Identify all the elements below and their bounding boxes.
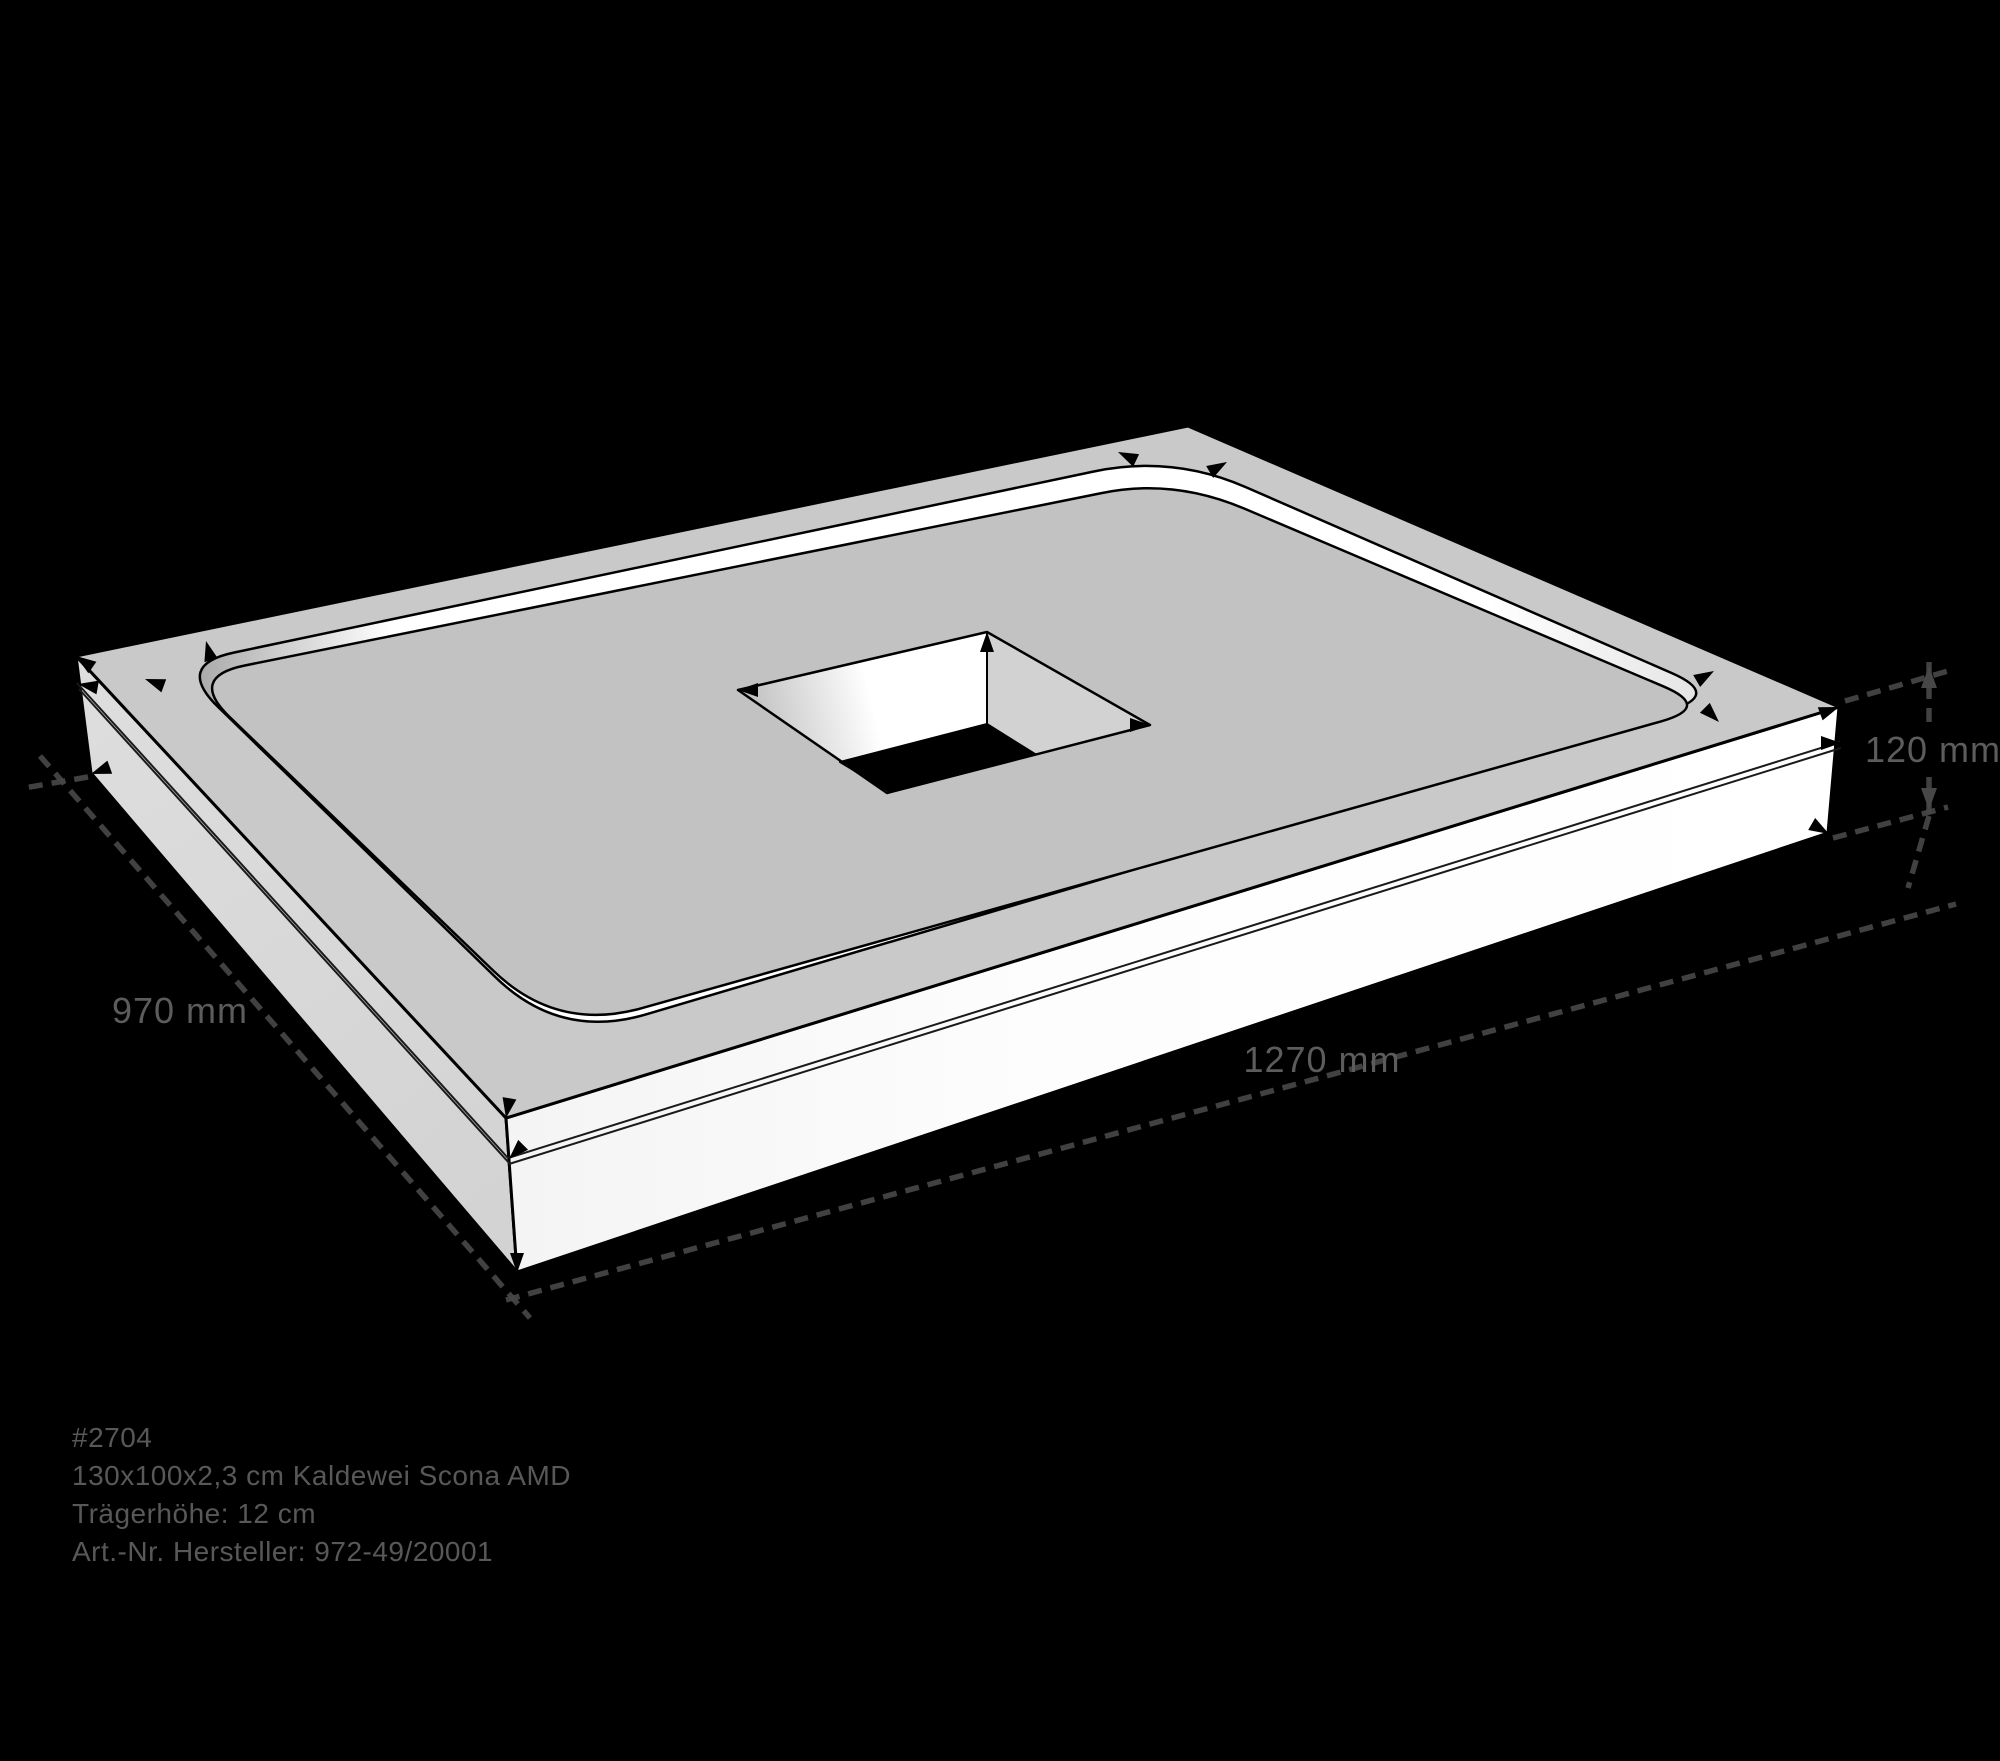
product-description: 130x100x2,3 cm Kaldewei Scona AMD — [72, 1460, 571, 1491]
width-dimension-label: 1270 mm — [1243, 1039, 1400, 1080]
manufacturer-article-number: Art.-Nr. Hersteller: 972-49/20001 — [72, 1536, 493, 1567]
height-dimension-label: 120 mm — [1865, 729, 2000, 770]
support-height: Trägerhöhe: 12 cm — [72, 1498, 316, 1529]
product-number: #2704 — [72, 1422, 152, 1453]
drawing-canvas: 970 mm 1270 mm 120 mm #2704 130x100x2,3 … — [0, 0, 2000, 1761]
tray-support-diagram: 970 mm 1270 mm 120 mm #2704 130x100x2,3 … — [0, 0, 2000, 1761]
depth-dimension-label: 970 mm — [112, 990, 248, 1031]
